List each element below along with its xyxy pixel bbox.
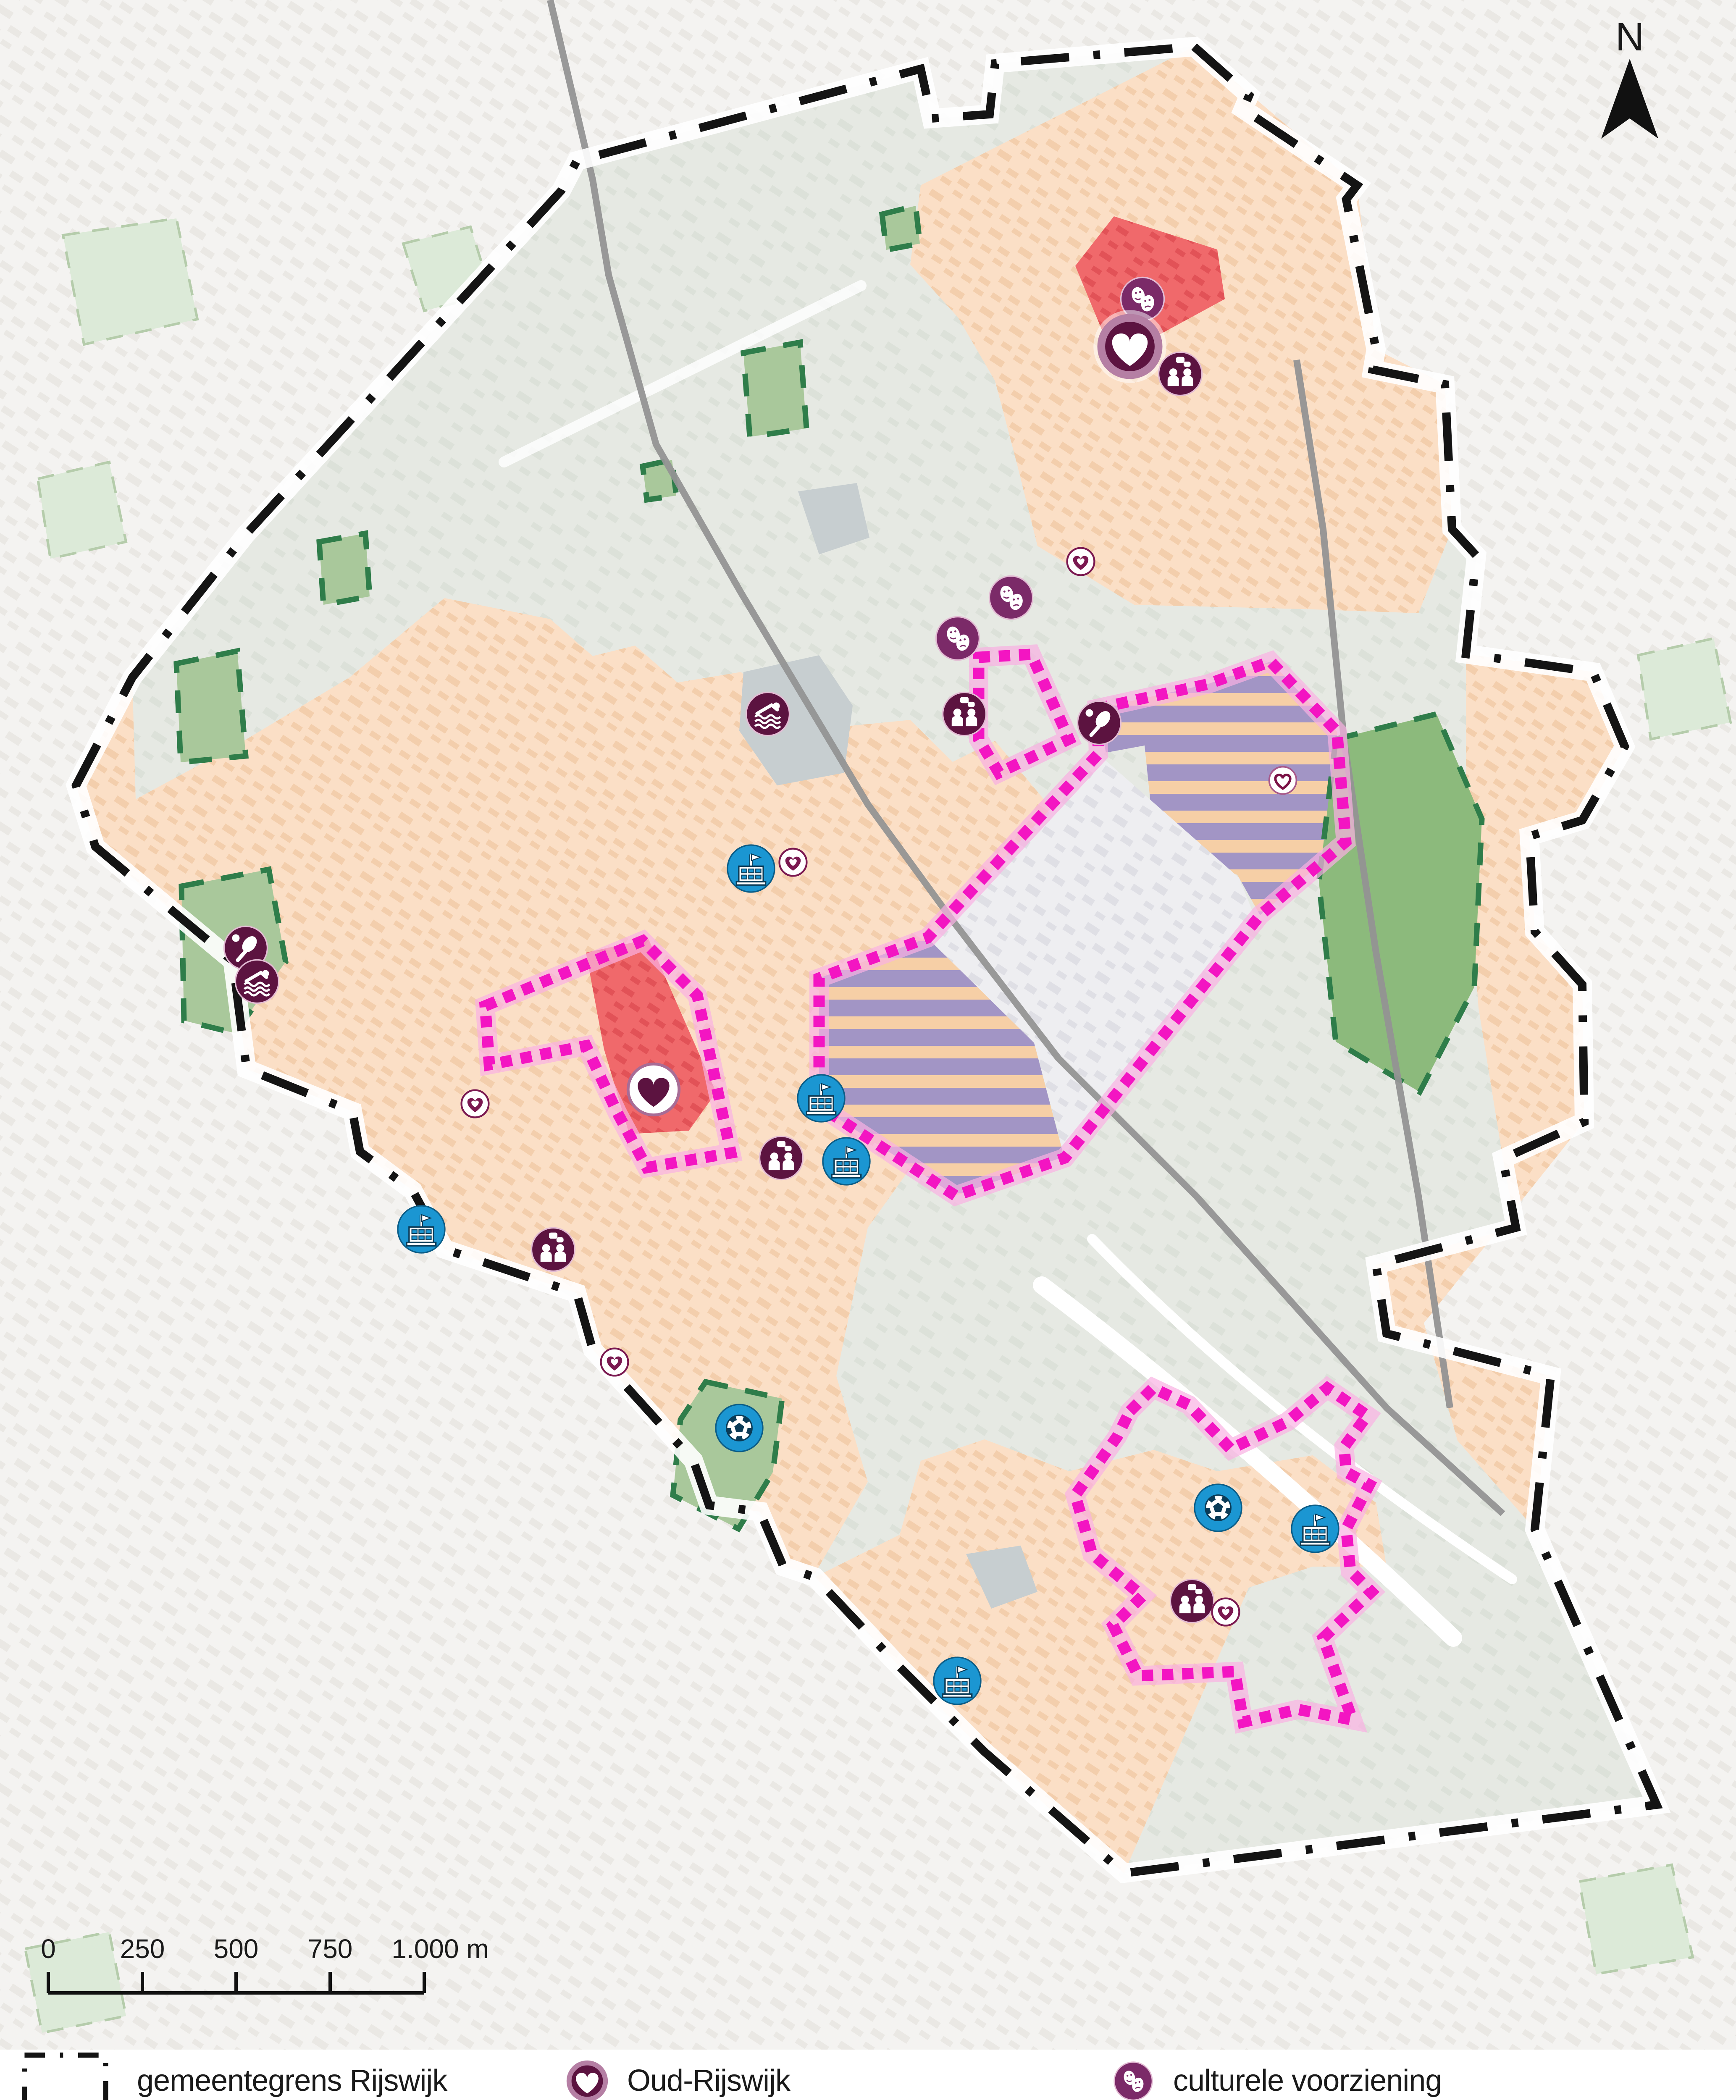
legend-oud-label: Oud-Rijswijk: [627, 2065, 790, 2097]
marker-buurtcentrum-icon: [1212, 1599, 1240, 1626]
scale-bar-label: 250: [120, 1934, 165, 1964]
marker-school-icon: [398, 1206, 445, 1253]
marker-zwembad-icon: [235, 960, 278, 1003]
scale-bar-label: 1.000 m: [391, 1934, 488, 1964]
marker-school-icon: [727, 845, 775, 892]
legend-boundary-row: gemeentegrens Rijswijk: [17, 2050, 554, 2100]
marker-school-icon: [823, 1138, 870, 1185]
marker-buurtcentrum-icon: [780, 849, 807, 876]
legend-cultureel-icon: [1105, 2056, 1161, 2100]
scale-bar-label: 0: [41, 1934, 56, 1964]
legend-cultureel-row: culturele voorziening: [1105, 2050, 1735, 2100]
marker-ontmoeting-icon: [759, 1136, 803, 1179]
structure-vision-map-page: N 02505007501.000 m gemeentegrens Rijswi…: [0, 0, 1736, 2100]
north-label: N: [1615, 15, 1644, 59]
marker-buurtsteunpunt-icon: [1269, 767, 1297, 794]
marker-ontmoeting-icon: [1158, 352, 1202, 395]
marker-ontmoeting-icon: [943, 692, 986, 735]
marker-ontmoeting-icon: [1170, 1579, 1213, 1622]
scale-bar-label: 500: [214, 1934, 259, 1964]
marker-bogaard-icon: [628, 1064, 679, 1115]
marker-buurtcentrum-icon: [462, 1090, 489, 1118]
legend-points-column: Oud-RijswijkBogaard stadscentrumbuurtcen…: [559, 2050, 1100, 2100]
marker-sport-icon: [716, 1404, 763, 1452]
legend: gemeentegrens Rijswijkhoofdcentrumwoonge…: [0, 2050, 1736, 2100]
marker-school-icon: [798, 1075, 845, 1122]
legend-oud-row: Oud-Rijswijk: [559, 2050, 1100, 2100]
marker-cultureel-icon: [936, 617, 979, 660]
marker-ontmoeting-icon: [531, 1228, 575, 1271]
legend-boundary-swatch: [17, 2050, 113, 2100]
marker-buurtcentrum-icon: [1067, 548, 1095, 575]
map-canvas: N 02505007501.000 m: [0, 0, 1736, 2050]
legend-areas-column: gemeentegrens Rijswijkhoofdcentrumwoonge…: [17, 2050, 554, 2100]
marker-sport-icon: [1195, 1484, 1242, 1531]
marker-buurtcentrum-icon: [601, 1349, 628, 1376]
legend-oud-icon: [559, 2056, 615, 2100]
legend-boundary-label: gemeentegrens Rijswijk: [137, 2065, 447, 2097]
marker-zwembad-icon: [746, 692, 789, 735]
marker-sporthal-icon: [1077, 701, 1121, 744]
marker-cultureel-icon: [989, 576, 1032, 619]
scale-bar-label: 750: [308, 1934, 353, 1964]
legend-points2-column: culturele voorzieningzwembaduitbreiding/…: [1105, 2050, 1735, 2100]
marker-oud-icon: [1093, 310, 1166, 383]
marker-school-icon: [934, 1657, 981, 1704]
marker-school-icon: [1292, 1505, 1339, 1552]
legend-cultureel-label: culturele voorziening: [1173, 2065, 1442, 2097]
